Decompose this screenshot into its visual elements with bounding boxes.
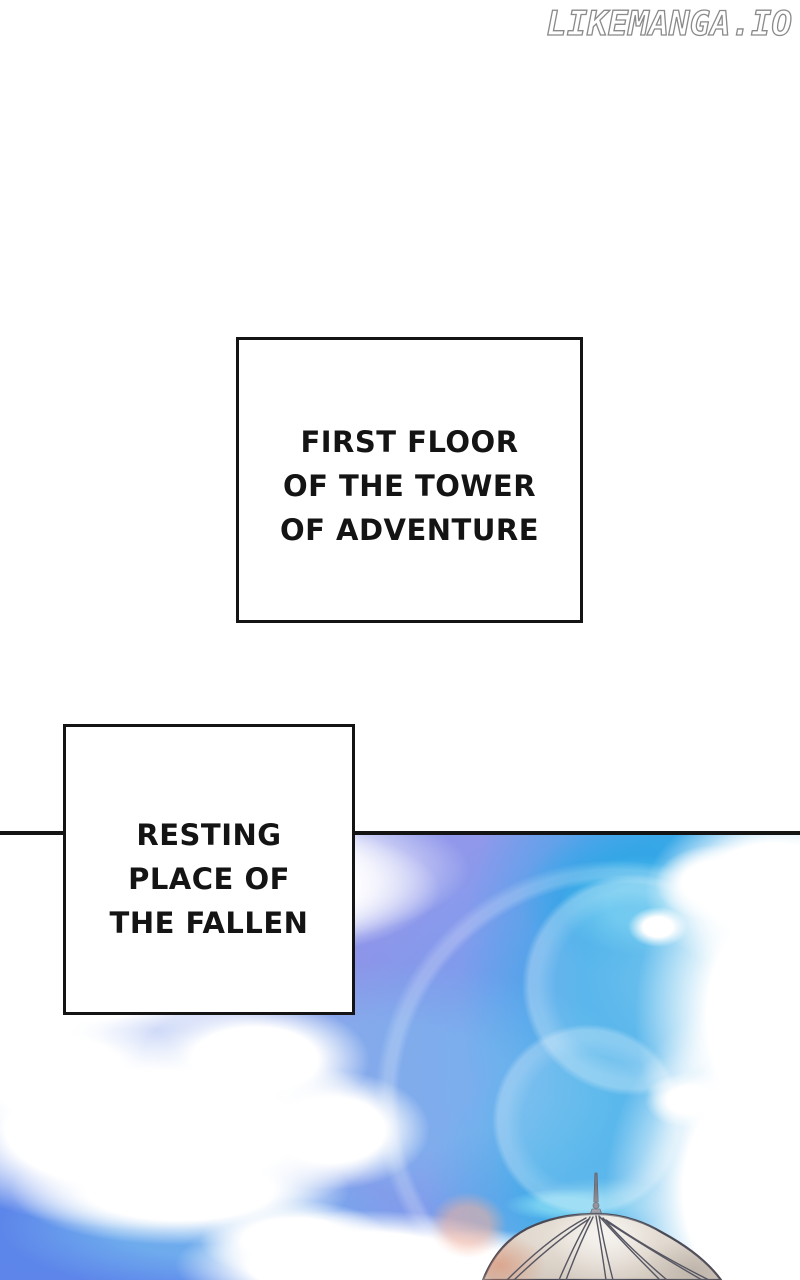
site-watermark: LIKEMANGA.IO — [546, 4, 792, 44]
caption-box-first-floor: FIRST FLOOR OF THE TOWER OF ADVENTURE — [236, 337, 583, 623]
caption-text-resting-place: RESTING PLACE OF THE FALLEN — [110, 813, 309, 945]
caption-text-first-floor: FIRST FLOOR OF THE TOWER OF ADVENTURE — [280, 420, 539, 552]
manga-page: LIKEMANGA.IO FIRST FLOOR OF THE TOWER OF… — [0, 0, 800, 1280]
caption-box-resting-place: RESTING PLACE OF THE FALLEN — [63, 724, 355, 1015]
